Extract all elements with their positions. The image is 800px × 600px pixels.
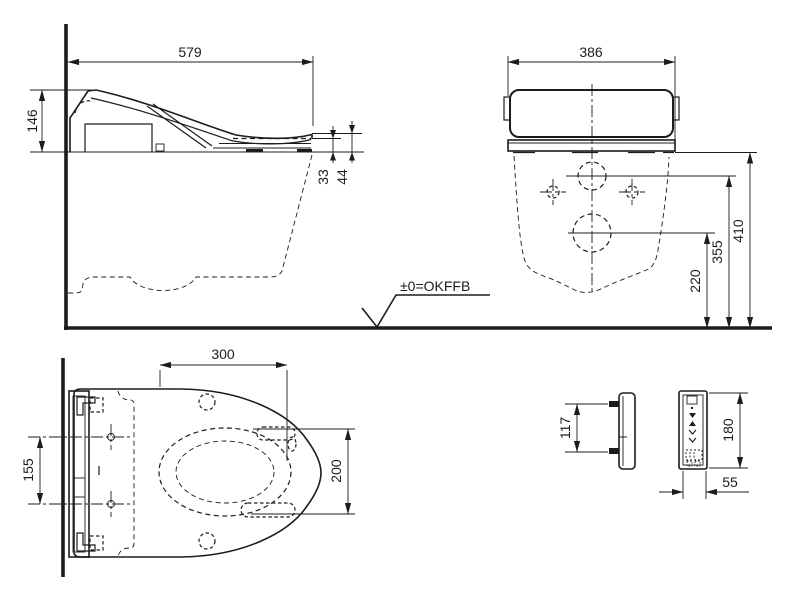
dim-55-label: 55 bbox=[722, 474, 738, 490]
toilet-dimension-drawing: 579 146 33 44 bbox=[0, 0, 800, 600]
seat-plan-outline bbox=[74, 389, 321, 557]
dim-155-label: 155 bbox=[20, 458, 36, 482]
remote-side-outline bbox=[619, 393, 635, 469]
dim-155: 155 bbox=[20, 437, 40, 504]
dim-44-arrow-top bbox=[349, 125, 355, 134]
remote-side-view: 117 bbox=[557, 393, 635, 469]
side-view: 579 146 33 44 bbox=[24, 24, 772, 330]
hinge-hook-top-hidden bbox=[90, 398, 103, 412]
screw-center-lines bbox=[28, 424, 131, 517]
dim-200: 200 bbox=[251, 429, 355, 514]
remote-body-outline bbox=[683, 395, 703, 465]
dim-220: 220 bbox=[687, 233, 707, 328]
dim-117-label: 117 bbox=[557, 417, 573, 440]
remote-button-rear-wash-icon bbox=[689, 430, 696, 434]
bumper-front bbox=[156, 144, 164, 151]
fixing-bolt-left bbox=[540, 179, 566, 205]
dim-300-label: 300 bbox=[211, 346, 235, 362]
remote-front-view: 180 55 bbox=[659, 391, 749, 499]
dim-117: 117 bbox=[557, 404, 608, 452]
remote-button-front-wash-icon bbox=[689, 438, 696, 442]
body-block bbox=[85, 124, 152, 152]
dim-355-label: 355 bbox=[709, 240, 725, 264]
dim-300: 300 bbox=[160, 346, 287, 461]
seat-band bbox=[508, 140, 675, 151]
dim-33-arrow-bottom bbox=[330, 152, 336, 161]
floor-level-symbol bbox=[362, 295, 490, 327]
dim-410: 410 bbox=[730, 153, 750, 329]
dim-579: 579 bbox=[68, 44, 313, 126]
dim-200-label: 200 bbox=[328, 459, 344, 483]
dim-180: 180 bbox=[709, 393, 748, 468]
floor-level-label: ±0=OKFFB bbox=[400, 278, 470, 294]
plate-cutout bbox=[74, 478, 85, 497]
mounting-pin-top bbox=[609, 401, 619, 407]
lid-rear-outline bbox=[510, 90, 673, 137]
dim-44-arrow-bottom bbox=[349, 152, 355, 161]
floor-level-annotation: ±0=OKFFB bbox=[362, 278, 490, 327]
remote-button-down-icon bbox=[689, 413, 696, 418]
dim-300-extensions bbox=[160, 370, 287, 461]
remote-stop-button bbox=[687, 396, 697, 404]
seat-foot-right bbox=[297, 149, 312, 153]
hinge-boss-bottom-hidden bbox=[199, 533, 215, 549]
mounting-pin-bottom bbox=[609, 448, 619, 454]
bowl-hidden-outline-side bbox=[67, 155, 312, 293]
lid-inner-edge bbox=[91, 98, 311, 144]
mounting-plate-outer bbox=[69, 391, 89, 557]
seat-side-profile bbox=[67, 90, 312, 293]
dim-220-label: 220 bbox=[687, 269, 703, 293]
dim-33-arrow-top bbox=[330, 130, 336, 139]
hinge-hook-bottom-hidden bbox=[90, 536, 103, 550]
remote-button-up-icon bbox=[689, 421, 696, 426]
seat-foot-left bbox=[246, 149, 263, 153]
dim-146-label: 146 bbox=[24, 109, 40, 133]
dim-355: 355 bbox=[709, 176, 729, 328]
dim-33-label: 33 bbox=[315, 169, 331, 185]
dim-579-label: 579 bbox=[178, 44, 202, 60]
dim-55: 55 bbox=[659, 471, 749, 499]
dim-386-label: 386 bbox=[579, 44, 603, 60]
body-hidden-outline-plan bbox=[118, 391, 134, 556]
lid-top-edge bbox=[88, 90, 312, 139]
plan-view: 300 155 200 bbox=[20, 346, 355, 577]
hinge-boss-top-hidden bbox=[199, 394, 215, 410]
dim-386: 386 bbox=[508, 44, 675, 152]
dim-55-extensions bbox=[683, 471, 706, 499]
technical-drawing-page: 579 146 33 44 bbox=[0, 0, 800, 600]
remote-led bbox=[691, 407, 693, 409]
dim-44-label: 44 bbox=[334, 169, 350, 185]
remote-spray-bars-icon bbox=[690, 452, 694, 458]
remote-side-details bbox=[619, 396, 627, 466]
rear-view: 386 410 355 220 bbox=[504, 44, 757, 328]
seat-pad-bottom-hidden bbox=[241, 503, 295, 517]
hinge-hidden-arc bbox=[75, 101, 93, 113]
seat-opening-inner-hidden bbox=[176, 441, 274, 503]
remote-spray-panel-icon bbox=[686, 450, 702, 460]
dim-410-label: 410 bbox=[730, 219, 746, 243]
bowl-hidden-outline-rear bbox=[514, 156, 669, 292]
dim-180-label: 180 bbox=[720, 418, 736, 442]
seat-edge-band bbox=[147, 104, 212, 148]
fixing-bolt-right bbox=[619, 179, 645, 205]
